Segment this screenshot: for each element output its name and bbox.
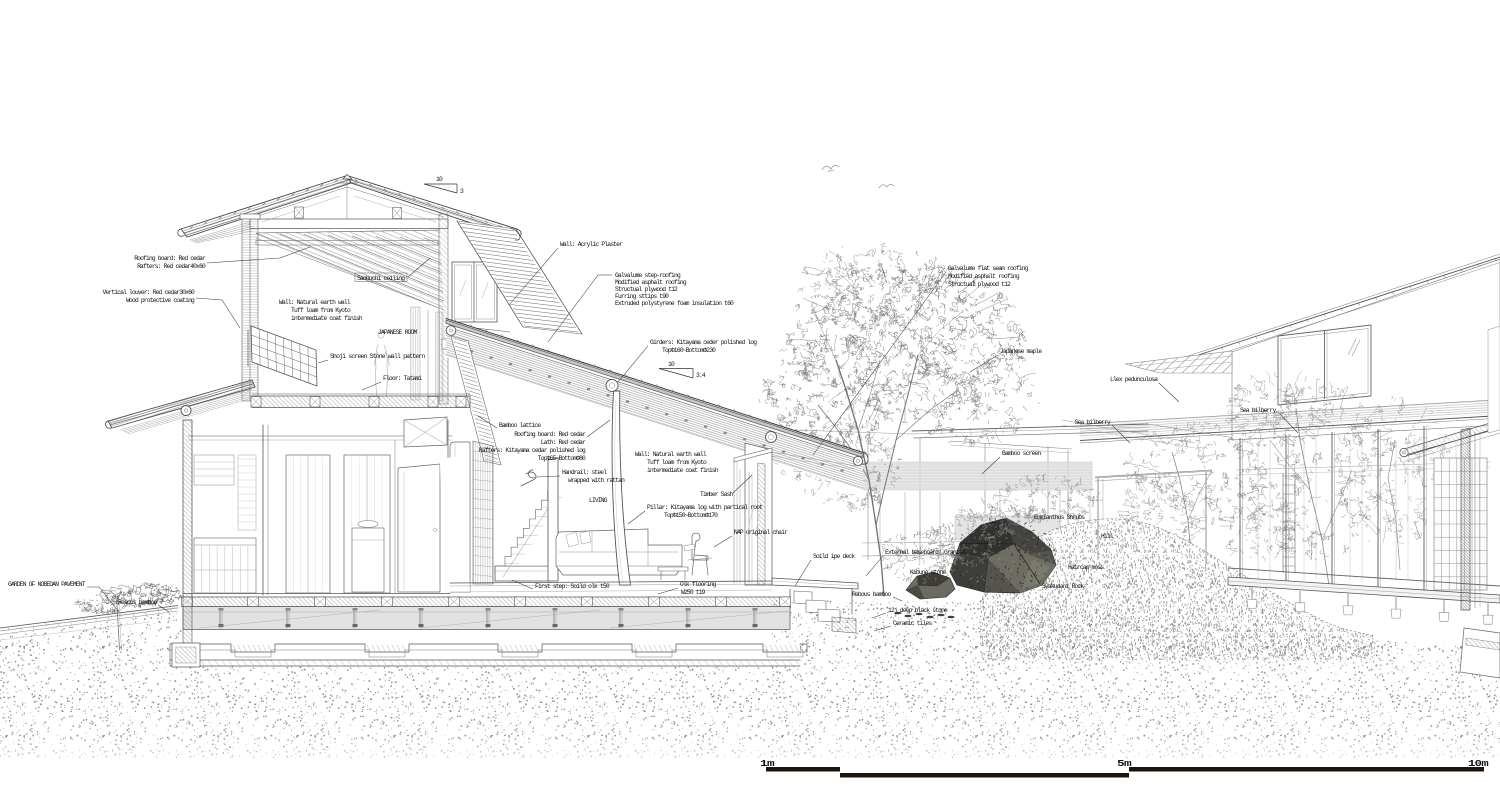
svg-text:JAPANESE ROOM: JAPANESE ROOM — [378, 329, 417, 336]
svg-text:Enkianthus Shrubs: Enkianthus Shrubs — [1034, 514, 1085, 521]
svg-text:Rafters: Red cedar40x60: Rafters: Red cedar40x60 — [137, 263, 206, 270]
svg-text:Modified asphalt roofing: Modified asphalt roofing — [615, 279, 687, 286]
svg-text:intermediate coat finish: intermediate coat finish — [291, 315, 363, 322]
svg-text:External baseboard: Granite: External baseboard: Granite — [885, 549, 966, 556]
svg-text:TopΦ160~BottomΦ230: TopΦ160~BottomΦ230 — [662, 347, 716, 354]
svg-text:Roofing board: Red cedar: Roofing board: Red cedar — [134, 255, 206, 262]
svg-text:Kibune stone: Kibune stone — [910, 569, 946, 576]
svg-text:LIVING: LIVING — [589, 497, 608, 504]
svg-text:Wall: Natural earth wall: Wall: Natural earth wall — [635, 451, 707, 458]
svg-text:12j deep black stone: 12j deep black stone — [888, 607, 948, 614]
svg-text:Haircap moss: Haircap moss — [1068, 564, 1104, 571]
svg-text:Ceramic tiles: Ceramic tiles — [893, 620, 932, 627]
svg-text:Olk flooring: Olk flooring — [680, 581, 716, 588]
svg-text:Galvalume flat seam roofing: Galvalume flat seam roofing — [948, 265, 1029, 272]
svg-text:Syakudani Rock: Syakudani Rock — [1042, 583, 1084, 590]
svg-text:Saobuchi ceiling: Saobuchi ceiling — [357, 275, 405, 282]
svg-text:Furring sttips t90: Furring sttips t90 — [615, 293, 669, 300]
svg-text:Handrail: steel: Handrail: steel — [562, 469, 607, 476]
svg-text:Rescus bamboo: Rescus bamboo — [118, 599, 157, 606]
svg-text:Rafters: Kitayama cedar polish: Rafters: Kitayama cedar polished log — [479, 447, 586, 454]
svg-text:Bamboo lattice: Bamboo lattice — [499, 422, 541, 429]
svg-text:wrapped with rattan: wrapped with rattan — [568, 477, 625, 484]
svg-text:NAP original chair: NAP original chair — [734, 529, 788, 536]
svg-text:Rebous bamboo: Rebous bamboo — [852, 591, 891, 598]
svg-text:TopΦ150~BottomΦ170: TopΦ150~BottomΦ170 — [664, 512, 718, 519]
svg-text:Timber Sash: Timber Sash — [700, 491, 733, 498]
svg-text:Structual plywood t12: Structual plywood t12 — [615, 286, 678, 293]
svg-text:3.4: 3.4 — [696, 372, 706, 379]
svg-text:Sea bilberry: Sea bilberry — [1240, 407, 1276, 414]
svg-text:Girders: Kitayama ceder polish: Girders: Kitayama ceder polished log — [650, 339, 757, 346]
svg-text:10: 10 — [436, 176, 443, 183]
svg-text:First step: Soild olk t50: First step: Soild olk t50 — [535, 583, 610, 590]
svg-text:Modified asphalt roofing: Modified asphalt roofing — [948, 273, 1020, 280]
svg-text:Extruded polystyrene foam insu: Extruded polystyrene foam insulation t60 — [615, 300, 734, 307]
svg-text:Sea bilberry: Sea bilberry — [1075, 419, 1111, 426]
svg-text:Shoji screen Stone wall patte: Shoji screen Stone wall pattern — [330, 353, 425, 360]
svg-text:10: 10 — [668, 361, 675, 368]
svg-text:Roofing board: Red cedar: Roofing board: Red cedar — [514, 431, 586, 438]
svg-text:Lath: Red cedar: Lath: Red cedar — [541, 439, 586, 446]
svg-text:Bamboo screen: Bamboo screen — [1002, 450, 1041, 457]
svg-text:Tuff loam from Kyoto: Tuff loam from Kyoto — [291, 307, 351, 314]
svg-text:Floor: Tatami: Floor: Tatami — [383, 375, 422, 382]
svg-text:Pillar: Kitayama log with part: Pillar: Kitayama log with partical root — [647, 504, 763, 511]
svg-text:intermediate coat finish: intermediate coat finish — [647, 467, 719, 474]
svg-text:Hill: Hill — [1101, 533, 1114, 540]
svg-text:TopΦ65~BottomΦ80: TopΦ65~BottomΦ80 — [538, 455, 586, 462]
svg-text:W250 t19: W250 t19 — [681, 589, 706, 596]
svg-text:Structual plywood t12: Structual plywood t12 — [948, 281, 1011, 288]
svg-text:GARDEN OF NOBEDAN PAVEMENT: GARDEN OF NOBEDAN PAVEMENT — [8, 581, 86, 588]
svg-text:Llex pedunculosa: Llex pedunculosa — [1110, 376, 1158, 383]
svg-text:Wood protective coating: Wood protective coating — [126, 297, 195, 304]
svg-text:Wall: Acrylic Plaster: Wall: Acrylic Plaster — [560, 241, 623, 248]
svg-text:Vertical louver: Red cedar30x6: Vertical louver: Red cedar30x60 — [103, 289, 195, 296]
svg-text:Galvalume step-roofing: Galvalume step-roofing — [615, 272, 681, 279]
svg-text:Japanese maple: Japanese maple — [1000, 348, 1042, 355]
svg-text:Wall: Natural earth wall: Wall: Natural earth wall — [279, 299, 351, 306]
svg-text:Tuff loam from Kyoto: Tuff loam from Kyoto — [647, 459, 707, 466]
svg-text:Soild ipe deck: Soild ipe deck — [813, 553, 855, 560]
